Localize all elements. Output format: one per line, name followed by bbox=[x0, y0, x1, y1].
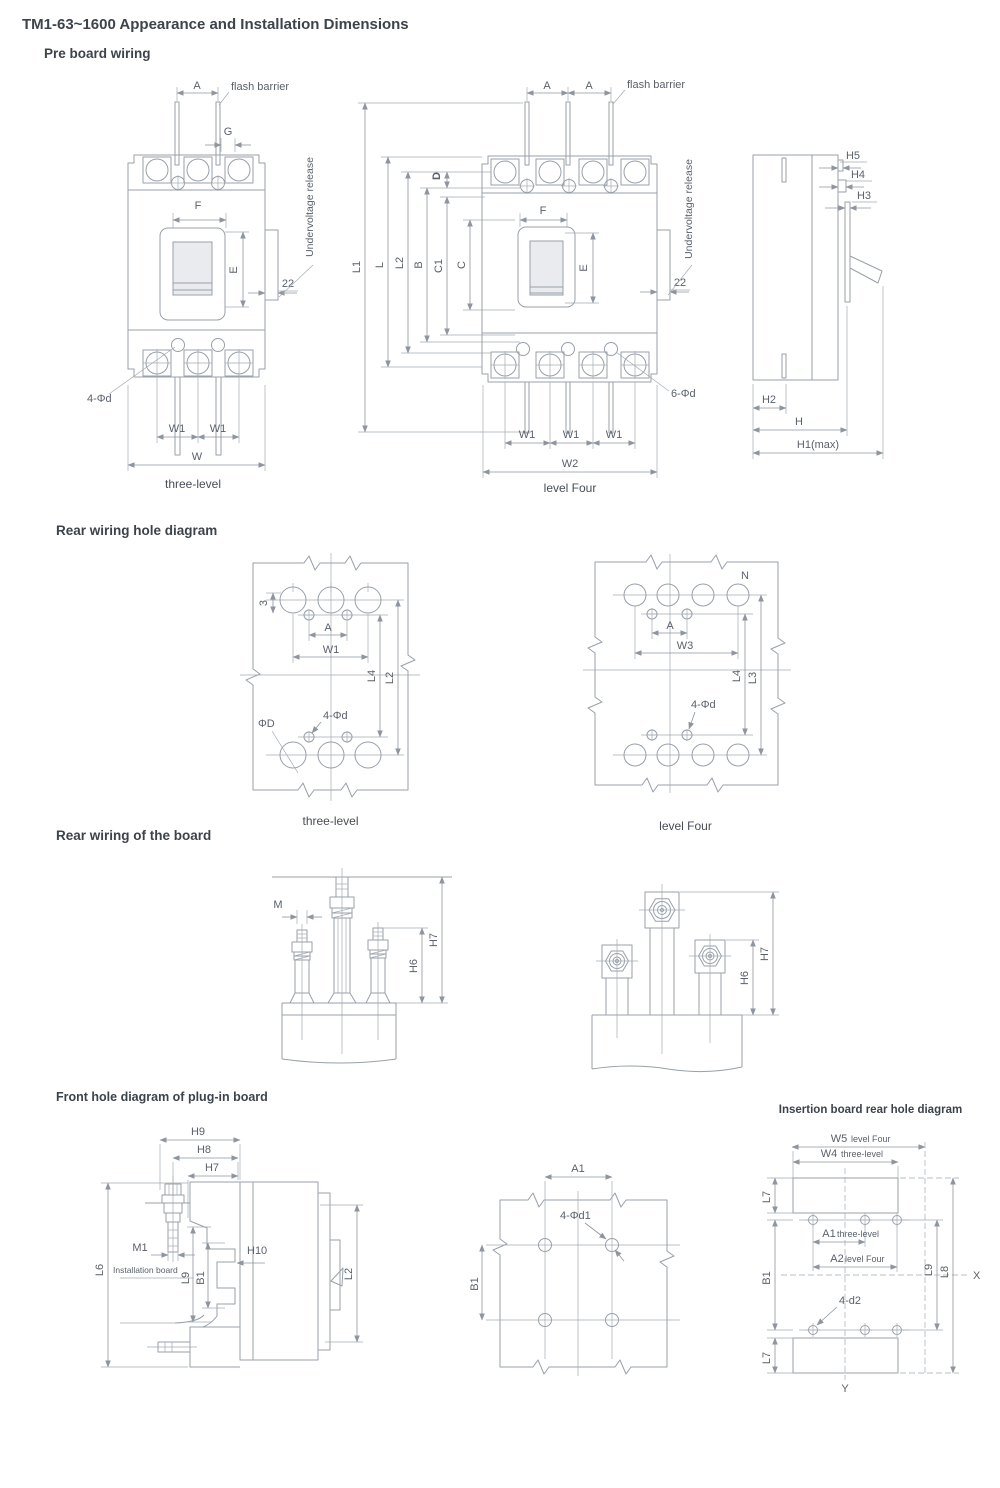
rocker-handle bbox=[518, 227, 575, 307]
dim-label-w1: W1 bbox=[563, 429, 580, 441]
dim-h1max: H1(max) bbox=[753, 286, 883, 459]
screw-holes-top bbox=[799, 1213, 909, 1227]
undervoltage-release-label: Undervoltage release bbox=[304, 157, 316, 257]
dim-label-w1: W1 bbox=[210, 423, 227, 435]
bar-center bbox=[639, 884, 685, 1054]
dim-3: 3 bbox=[258, 593, 281, 613]
dim-label-h: H bbox=[795, 416, 803, 428]
dim-label-w5: W5 bbox=[831, 1133, 848, 1145]
top-terminals bbox=[143, 157, 253, 191]
dim-l7-bottom: L7 bbox=[761, 1338, 793, 1373]
dim-h6: H6 bbox=[726, 940, 759, 1015]
bar-right bbox=[689, 934, 731, 1043]
phi-d-callout: ΦD bbox=[258, 718, 298, 773]
dim-label-l9: L9 bbox=[923, 1264, 935, 1276]
dim-label-b1: B1 bbox=[195, 1271, 207, 1284]
dim-l6: L6 bbox=[94, 1183, 188, 1367]
dim-label-4phid: 4-Φd bbox=[323, 710, 348, 722]
diagram-rear-wiring-studs: M H7 H6 bbox=[256, 858, 461, 1078]
dim-h2: H2 bbox=[753, 384, 786, 459]
dim-label-h7: H7 bbox=[759, 947, 771, 961]
dim-label-l4: L4 bbox=[366, 670, 378, 682]
dim-label-h8: H8 bbox=[197, 1144, 211, 1156]
diagram-rear-holes-level-four: N A W3 L4 L3 4-Φd bbox=[583, 548, 798, 798]
dim-g: G bbox=[205, 126, 251, 152]
dim-label-a: A bbox=[666, 620, 674, 632]
dim-b1: B1 bbox=[469, 1245, 482, 1320]
dim-m: M bbox=[273, 899, 322, 924]
dim-label-a1: A1 bbox=[571, 1163, 584, 1175]
dim-e: E bbox=[565, 233, 599, 303]
dim-label-w1: W1 bbox=[169, 423, 186, 435]
dim-w: W bbox=[128, 385, 265, 471]
terminal-holes-top: N bbox=[613, 570, 767, 620]
diagram-insertion-rear-holes: W5 level Four W4 three-level L7 A1 three… bbox=[753, 1118, 993, 1408]
screw-holes-bottom bbox=[799, 1323, 909, 1337]
dim-label-c: C bbox=[456, 261, 468, 269]
dim-h: H bbox=[753, 306, 847, 436]
diagram-rear-holes-three-level: 3 A W1 L4 L2 ΦD 4-Φd bbox=[228, 545, 428, 810]
dim-label-3: 3 bbox=[258, 600, 270, 606]
stud-left bbox=[290, 924, 314, 1040]
breaker-base bbox=[282, 1003, 396, 1063]
axis-y-label: Y bbox=[841, 1383, 849, 1395]
mounting-holes-callout: 4-Φd bbox=[689, 699, 716, 729]
dim-l4: L4 bbox=[641, 614, 753, 735]
dim-w1: W1 W1 W1 bbox=[505, 429, 635, 443]
flash-barrier-callout: flash barrier bbox=[613, 79, 685, 104]
stud-right bbox=[366, 922, 390, 1040]
terminal-holes-bottom bbox=[624, 729, 749, 766]
mounting-holes bbox=[539, 1239, 619, 1327]
section-pre-board-heading: Pre board wiring bbox=[44, 46, 151, 61]
dim-label-phiD: ΦD bbox=[258, 718, 275, 730]
dim-label-w4-note: three-level bbox=[841, 1149, 883, 1159]
dim-a1: A1 bbox=[545, 1163, 612, 1177]
dim-label-d: D bbox=[431, 172, 443, 180]
flash-barrier-label: flash barrier bbox=[231, 81, 289, 93]
dim-label-a1: A1 bbox=[822, 1228, 835, 1240]
section-rear-board-heading: Rear wiring of the board bbox=[56, 828, 211, 843]
dim-h6: H6 bbox=[383, 928, 428, 1003]
dim-22: 22 bbox=[248, 278, 298, 293]
dim-label-a2-note: level Four bbox=[845, 1254, 885, 1264]
dim-label-f: F bbox=[195, 200, 202, 212]
dim-f: F bbox=[520, 205, 567, 227]
dim-label-a: A bbox=[585, 80, 593, 92]
dim-label-e: E bbox=[578, 264, 590, 271]
dim-label-w1: W1 bbox=[323, 644, 340, 656]
bar-left bbox=[596, 939, 638, 1038]
installation-board-label: Installation board bbox=[113, 1265, 178, 1275]
caption-level-four: level Four bbox=[505, 481, 635, 495]
dim-b1: B1 bbox=[761, 1220, 793, 1330]
dim-label-w3: W3 bbox=[677, 640, 694, 652]
mounting-holes-callout: 4-Φd bbox=[312, 710, 348, 733]
breaker-body bbox=[240, 1182, 343, 1360]
dim-label-a: A bbox=[543, 80, 551, 92]
dim-h3: H3 bbox=[825, 190, 877, 208]
dim-label-l9: L9 bbox=[180, 1272, 192, 1284]
flash-barrier-rods bbox=[175, 102, 220, 165]
dim-label-w2: W2 bbox=[562, 458, 579, 470]
dim-h10: H10 bbox=[237, 1245, 267, 1263]
flash-barrier-label: flash barrier bbox=[627, 79, 685, 91]
dim-b1: B1 bbox=[195, 1243, 225, 1308]
dim-22: 22 bbox=[640, 277, 690, 292]
section-insertion-heading: Insertion board rear hole diagram bbox=[753, 1104, 988, 1116]
dim-label-a1-note: three-level bbox=[837, 1229, 879, 1239]
terminal-block-top bbox=[793, 1178, 898, 1213]
dim-label-h2: H2 bbox=[762, 394, 776, 406]
dim-label-m1: M1 bbox=[132, 1242, 147, 1254]
undervoltage-release-callout: Undervoltage release bbox=[668, 159, 695, 295]
dim-label-h6: H6 bbox=[739, 971, 751, 985]
dim-label-m: M bbox=[273, 899, 282, 911]
dim-label-h1max: H1(max) bbox=[797, 439, 839, 451]
board-outline bbox=[583, 554, 791, 793]
diagram-pre-level-four: A A flash barrier L1 L L2 B C1 C bbox=[355, 75, 705, 505]
rocker-handle bbox=[160, 228, 225, 320]
dim-label-6phid: 6-Φd bbox=[671, 388, 696, 400]
dim-label-4phid: 4-Φd bbox=[691, 699, 716, 711]
breaker-base bbox=[592, 1015, 742, 1072]
page-title: TM1-63~1600 Appearance and Installation … bbox=[22, 16, 409, 33]
mounting-holes-callout: 4-Φd1 bbox=[560, 1210, 624, 1261]
terminal-holes-bottom bbox=[280, 731, 381, 768]
dim-label-w: W bbox=[192, 451, 203, 463]
axis-y: Y bbox=[841, 1168, 849, 1395]
bottom-terminals bbox=[491, 343, 649, 380]
dim-label-w5-note: level Four bbox=[851, 1134, 891, 1144]
dim-label-l6: L6 bbox=[94, 1264, 106, 1276]
dim-label-w4: W4 bbox=[821, 1148, 838, 1160]
dim-a: A bbox=[309, 621, 347, 641]
neutral-pole-label: N bbox=[741, 570, 749, 582]
dim-label-a2: A2 bbox=[830, 1253, 843, 1265]
dim-label-h9: H9 bbox=[191, 1126, 205, 1138]
mounting-bolt bbox=[162, 1176, 184, 1262]
dim-label-g: G bbox=[224, 126, 233, 138]
dim-label-4phid: 4-Φd bbox=[87, 393, 112, 405]
undervoltage-release-label: Undervoltage release bbox=[683, 159, 695, 259]
dim-label-c1: C1 bbox=[433, 259, 445, 273]
dim-label-4d2: 4-d2 bbox=[839, 1295, 861, 1307]
caption-three-level: three-level bbox=[133, 477, 253, 491]
breaker-body bbox=[482, 156, 657, 382]
flash-barrier-callout: flash barrier bbox=[219, 81, 289, 105]
dim-label-b1: B1 bbox=[761, 1271, 773, 1284]
terminal-block-bottom bbox=[793, 1338, 898, 1373]
section-plug-in-heading: Front hole diagram of plug-in board bbox=[56, 1090, 268, 1104]
dim-label-h4: H4 bbox=[851, 169, 865, 181]
dim-m1: M1 bbox=[132, 1242, 195, 1261]
dim-label-l1: L1 bbox=[351, 261, 363, 273]
dim-a: A bbox=[652, 620, 687, 639]
dim-label-l: L bbox=[374, 262, 386, 268]
dim-label-h6: H6 bbox=[408, 959, 420, 973]
dim-label-a: A bbox=[324, 622, 332, 634]
dim-f: F bbox=[173, 200, 226, 228]
dim-label-l7: L7 bbox=[761, 1352, 773, 1364]
terminal-slots bbox=[157, 377, 239, 455]
screw-holes-callout: 4-d2 bbox=[817, 1295, 861, 1325]
dim-h7: H7 bbox=[188, 1162, 238, 1218]
axis-x-label: X bbox=[973, 1270, 981, 1282]
dim-label-l4: L4 bbox=[731, 670, 743, 682]
terminal-holes-top bbox=[266, 583, 404, 621]
dim-label-l2: L2 bbox=[394, 257, 406, 269]
dim-label-h7: H7 bbox=[205, 1162, 219, 1174]
dim-label-h10: H10 bbox=[247, 1245, 267, 1257]
page: TM1-63~1600 Appearance and Installation … bbox=[0, 0, 1000, 1488]
dim-label-4phid1: 4-Φd1 bbox=[560, 1210, 591, 1222]
side-tab bbox=[265, 230, 278, 300]
dim-label-l2: L2 bbox=[343, 1268, 355, 1280]
dim-stack-left: L1 L L2 B C1 C D bbox=[351, 103, 527, 432]
caption-level-four: level Four bbox=[623, 819, 748, 833]
undervoltage-release-callout: Undervoltage release bbox=[279, 157, 316, 297]
mounting-holes-callout: 6-Φd bbox=[616, 352, 696, 400]
dim-label-l2: L2 bbox=[384, 672, 396, 684]
dim-label-w1: W1 bbox=[519, 429, 536, 441]
dim-label-l8: L8 bbox=[939, 1266, 951, 1278]
dim-label-b1: B1 bbox=[469, 1277, 481, 1290]
dim-l7-top: L7 bbox=[761, 1178, 793, 1213]
dim-label-h3: H3 bbox=[857, 190, 871, 202]
dim-label-b: B bbox=[413, 261, 425, 268]
dim-a: A bbox=[177, 80, 218, 101]
diagram-side-view: H5 H4 H3 H2 H H1(max) bbox=[735, 128, 975, 468]
dim-label-l7: L7 bbox=[761, 1191, 773, 1203]
diagram-plug-in-side: H9 H8 H7 L6 L2 bbox=[85, 1118, 385, 1378]
dim-label-f: F bbox=[540, 205, 547, 217]
axis-x: X bbox=[781, 1270, 981, 1282]
side-tab bbox=[657, 230, 670, 300]
dim-e: E bbox=[225, 232, 249, 307]
stud-center bbox=[328, 868, 356, 1054]
dim-w4: W4 three-level bbox=[793, 1148, 898, 1178]
section-rear-hole-heading: Rear wiring hole diagram bbox=[56, 523, 217, 538]
dim-label-a: A bbox=[193, 80, 201, 92]
breaker-side-body bbox=[753, 155, 882, 380]
diagram-rear-wiring-bars: H7 H6 bbox=[573, 858, 788, 1078]
dim-label-h5: H5 bbox=[846, 150, 860, 162]
dim-label-w1: W1 bbox=[606, 429, 623, 441]
dim-l2: L2 bbox=[320, 1205, 363, 1342]
diagram-pre-three-level: A flash barrier G F bbox=[85, 75, 350, 505]
diagram-plug-in-front-holes: A1 4-Φd1 B1 bbox=[468, 1143, 693, 1383]
dim-label-22: 22 bbox=[674, 277, 686, 289]
dim-l2: L2 bbox=[266, 600, 404, 755]
dim-a-pair: A A bbox=[527, 80, 611, 101]
dim-label-h7: H7 bbox=[428, 933, 440, 947]
caption-three-level: three-level bbox=[268, 814, 393, 828]
dim-label-l3: L3 bbox=[747, 672, 759, 684]
dim-label-e: E bbox=[228, 266, 240, 273]
